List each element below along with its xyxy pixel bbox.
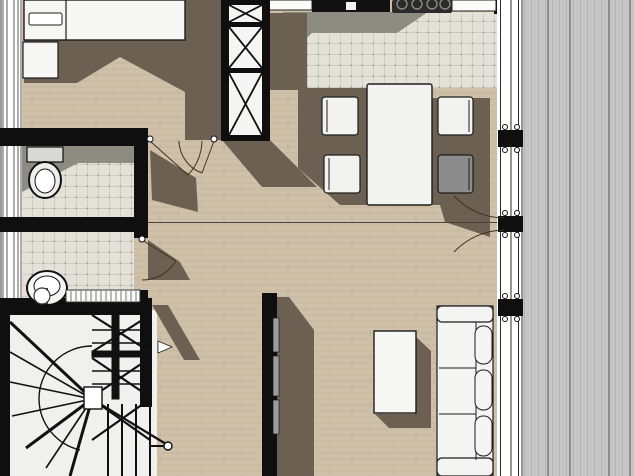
sofa-armrest-top [437,306,493,322]
sofa-back-cushions [475,326,492,456]
bed-wardrobe-gap-shadow [185,0,222,140]
deck-floor [521,0,634,476]
tv-screen [273,318,279,434]
pillow [29,13,62,25]
nightstand [23,42,58,78]
wardrobe-side-shadow [270,13,307,90]
wall-bathroom-right-upper [134,146,148,238]
floor-plan [0,0,634,476]
window-outer-edge [0,0,2,298]
counter-sink [346,2,356,10]
wall-bathroom-top [0,128,148,146]
counter-white-left [266,0,312,10]
radiator [66,290,140,302]
stair-newel-post [84,387,102,409]
handrail-curve [34,288,50,304]
dining-chair-3 [438,97,473,135]
stair-mid-bar [92,351,150,357]
glass-post-1 [498,130,523,147]
wall-stairs-left [0,302,10,476]
dining-chair-4-gray [438,155,473,193]
toilet-cistern [27,147,63,162]
dining-table [367,84,432,205]
tv-wall-shadow [277,297,314,476]
glazed-east-wall [497,0,523,476]
stair-rail-end [164,442,172,450]
wall-bathroom-middle [0,217,134,232]
counter-white-right [452,0,496,11]
sofa-armrest-bottom [437,458,493,476]
west-window-wall [0,0,22,298]
toilet-bowl-inner [35,169,55,193]
glass-post-3 [498,299,523,316]
coffee-table [374,331,416,413]
wardrobe [221,0,270,141]
floor-plan-svg [0,0,634,476]
